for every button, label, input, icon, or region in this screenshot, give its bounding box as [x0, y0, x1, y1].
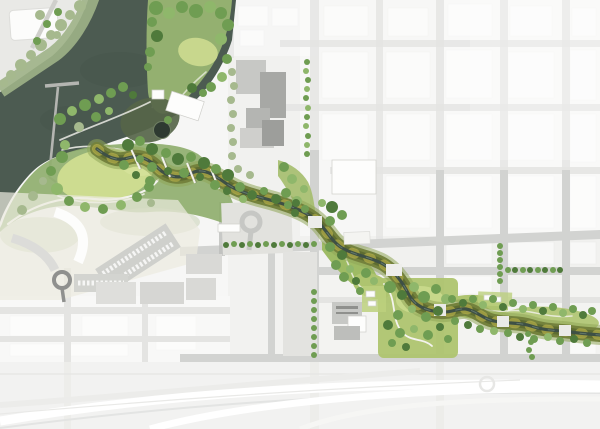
- highway-interchange: [0, 362, 600, 429]
- site-plan-map: [0, 0, 600, 429]
- corner-wash: [470, 0, 600, 160]
- warehouse: [96, 282, 136, 304]
- large-building: [332, 160, 376, 194]
- pavilion: [218, 224, 240, 232]
- pond: [154, 122, 171, 139]
- warehouse: [140, 282, 184, 304]
- master-plan-canvas: [0, 0, 600, 429]
